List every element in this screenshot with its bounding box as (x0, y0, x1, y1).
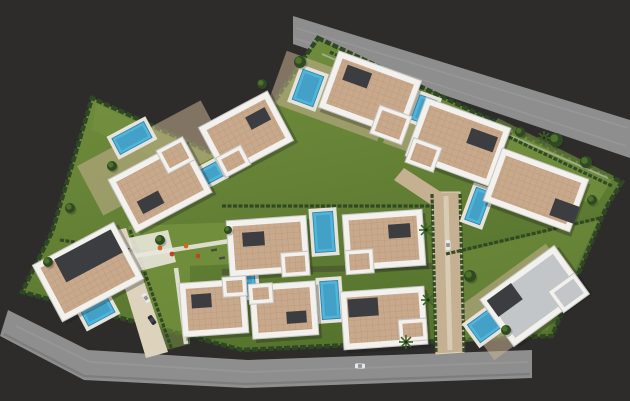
palm-tree (399, 335, 413, 349)
tree-highlight (550, 134, 558, 142)
playground-equipment (184, 244, 189, 249)
palm-tree (421, 293, 435, 307)
palm-trunk-top (426, 298, 429, 301)
car-windshield (446, 243, 450, 247)
tree-highlight (502, 326, 508, 332)
villa-upper-volume (388, 223, 411, 239)
car (445, 240, 450, 250)
tree (257, 79, 269, 91)
palm-trunk-top (424, 228, 427, 231)
car-windshield (358, 364, 362, 368)
swimming-pool (308, 207, 339, 257)
villa-building (340, 286, 431, 354)
tree-highlight (465, 271, 472, 278)
villa-wing-roof (226, 280, 243, 293)
pool-deep-end (316, 215, 332, 250)
car (355, 363, 365, 368)
playground-equipment (170, 252, 175, 257)
villa-upper-volume (191, 293, 212, 308)
tree-highlight (258, 80, 264, 86)
villa-building (342, 209, 429, 275)
tree-highlight (108, 162, 114, 168)
tree-highlight (516, 128, 522, 134)
palm-trunk-top (404, 340, 407, 343)
tree-highlight (295, 57, 302, 64)
palm-tree (537, 131, 551, 145)
tree-highlight (44, 258, 50, 264)
tree-highlight (66, 204, 72, 210)
villa-building (179, 276, 252, 342)
tree-highlight (588, 196, 594, 202)
villa-building (248, 280, 322, 344)
render-canvas (0, 0, 630, 401)
villa-upper-volume (348, 297, 379, 317)
palm-tree (419, 223, 433, 237)
villa-building (226, 215, 313, 281)
villa-upper-volume (286, 310, 307, 323)
playground-equipment (196, 254, 201, 259)
villa-wing-roof (349, 253, 370, 270)
villa-wing-roof (285, 255, 306, 272)
villa-wing-roof (252, 287, 269, 300)
tree-highlight (156, 236, 162, 242)
site-plan-3d-render (0, 0, 630, 401)
tree-highlight (581, 157, 588, 164)
pool-deep-end (323, 284, 337, 317)
tree-highlight (225, 227, 229, 231)
villa-upper-volume (242, 231, 265, 247)
palm-trunk-top (542, 136, 545, 139)
